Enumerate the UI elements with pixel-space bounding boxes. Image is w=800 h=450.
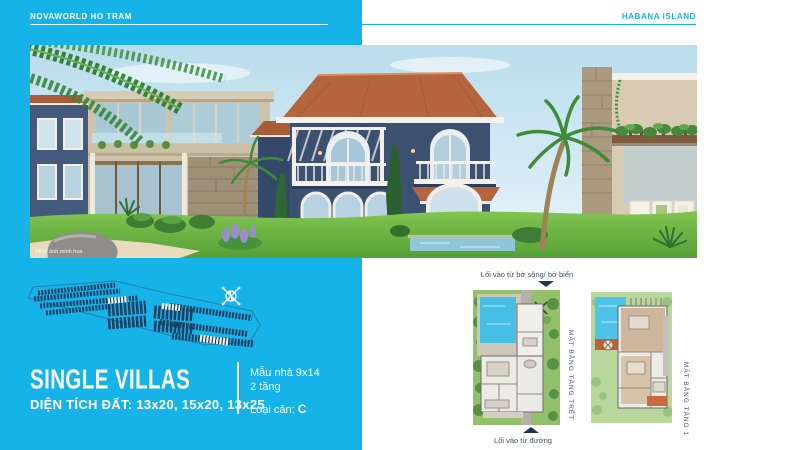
bedroom-floor	[621, 308, 665, 352]
lower-awning	[647, 396, 667, 406]
roof-strip	[663, 316, 669, 376]
first-floor-plan	[591, 292, 672, 423]
terrace	[483, 412, 523, 418]
watermark-text: Hình ảnh minh họa	[36, 249, 83, 255]
ground-floor-plan	[473, 290, 560, 425]
info-divider	[237, 362, 239, 414]
first-floor-caption: MẶT BẰNG TẦNG 1	[682, 362, 689, 436]
ground-floor-caption: MẶT BẰNG TẦNG TRỆT	[567, 330, 574, 420]
model-text: Mẫu nhà 9x14	[250, 366, 320, 380]
compass-icon	[222, 287, 241, 306]
pergola-slats	[631, 298, 661, 306]
entry-top-label: Lối vào từ bờ sông/ bờ biển	[468, 270, 586, 279]
project-title: HABANA ISLAND	[622, 12, 696, 21]
villa-lot-rows	[34, 285, 254, 344]
villa-render-image: Hình ảnh minh họa	[30, 45, 697, 258]
swimming-pool	[480, 297, 516, 343]
villa-scene: Hình ảnh minh họa	[30, 45, 697, 258]
unit-spec-block: Mẫu nhà 9x14 2 tầng Loại căn: C	[250, 366, 320, 417]
land-area-text: DIỆN TÍCH ĐẤT: 13x20, 15x20, 13x25	[30, 397, 265, 412]
floors-text: 2 tầng	[250, 380, 320, 394]
master-plan-diagram	[20, 276, 270, 356]
entry-arrow-down-icon	[538, 281, 554, 287]
brand-title: NOVAWORLD HO TRAM	[30, 12, 132, 21]
brochure-slide: NOVAWORLD HO TRAM HABANA ISLAND	[0, 0, 800, 450]
entry-arrow-up-icon	[523, 427, 539, 433]
entry-bottom-label: Lối vào từ đường	[464, 436, 582, 445]
header-rule-right	[362, 24, 696, 25]
section-title: SINGLE VILLAS	[30, 364, 190, 396]
pool	[408, 235, 517, 251]
header-rule-left	[30, 24, 328, 25]
unit-type-text: Loại căn: C	[250, 402, 320, 417]
